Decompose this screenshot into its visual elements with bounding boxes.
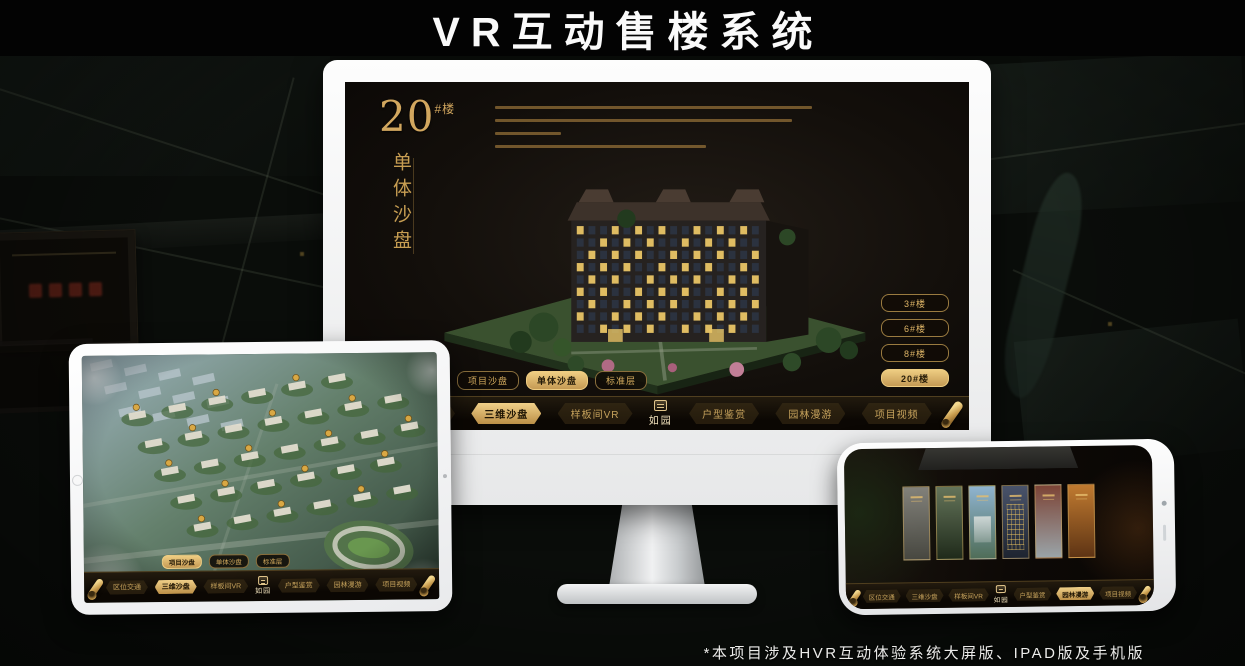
phone-speaker-icon bbox=[1163, 525, 1166, 541]
tablet-camera-icon bbox=[443, 474, 447, 478]
background-photo-patch bbox=[981, 51, 1245, 214]
ruyuan-logo-text: 如园 bbox=[649, 412, 673, 427]
building-button-8#楼[interactable]: 8#楼 bbox=[881, 344, 949, 362]
scroll-handle-icon bbox=[848, 588, 862, 605]
tablet-navbar: 区位交通三维沙盘样板间VR如园户型鉴赏园林漫游项目视频 bbox=[84, 568, 439, 603]
map-gold-speck bbox=[300, 252, 304, 256]
title-strip: VR互动售楼系统 bbox=[0, 0, 1245, 56]
nav-item-项目视频[interactable]: 项目视频 bbox=[1099, 586, 1137, 600]
building-model-render bbox=[419, 136, 889, 398]
tablet-device: 项目沙盘单体沙盘标准层 区位交通三维沙盘样板间VR如园户型鉴赏园林漫游项目视频 bbox=[69, 340, 453, 615]
tab-标准层[interactable]: 标准层 bbox=[256, 554, 290, 568]
description-text-lines bbox=[495, 106, 825, 158]
building-selector-buttons: 3#楼6#楼8#楼20#楼 bbox=[881, 294, 949, 387]
page-title: VR互动售楼系统 bbox=[422, 0, 824, 58]
phone-screen: 区位交通三维沙盘样板间VR如园户型鉴赏园林漫游项目视频 bbox=[844, 445, 1154, 609]
monitor-floor-tabs: 项目沙盘单体沙盘标准层 bbox=[457, 371, 647, 390]
tab-标准层[interactable]: 标准层 bbox=[595, 371, 647, 390]
nav-item-三维沙盘[interactable]: 三维沙盘 bbox=[471, 403, 541, 424]
nav-item-项目视频[interactable]: 项目视频 bbox=[375, 577, 417, 591]
phone-device: 区位交通三维沙盘样板间VR如园户型鉴赏园林漫游项目视频 bbox=[837, 439, 1176, 616]
nav-item-三维沙盘[interactable]: 三维沙盘 bbox=[905, 589, 943, 603]
monitor-stand-foot bbox=[557, 584, 757, 604]
gallery-panel-warm-interior[interactable] bbox=[1067, 484, 1095, 558]
nav-item-区位交通[interactable]: 区位交通 bbox=[863, 589, 901, 603]
scene-gallery bbox=[902, 484, 1095, 561]
gallery-panel-sky-building[interactable] bbox=[968, 485, 996, 559]
nav-item-样板间VR[interactable]: 样板间VR bbox=[558, 403, 633, 424]
tab-单体沙盘[interactable]: 单体沙盘 bbox=[526, 371, 588, 390]
ruyuan-logo: 如园 bbox=[994, 585, 1009, 604]
scroll-handle-icon bbox=[419, 574, 437, 595]
headline-divider bbox=[413, 158, 414, 254]
tablet-home-button[interactable] bbox=[72, 474, 83, 485]
ruyuan-logo-icon bbox=[258, 576, 268, 585]
scroll-handle-icon bbox=[941, 399, 964, 427]
tab-项目沙盘[interactable]: 项目沙盘 bbox=[162, 555, 202, 569]
building-number-suffix: #楼 bbox=[434, 102, 455, 116]
building-headline: 20#楼 bbox=[379, 96, 455, 138]
plaque-characters bbox=[1, 281, 129, 298]
nav-item-园林漫游[interactable]: 园林漫游 bbox=[775, 403, 845, 424]
page: VR互动售楼系统 20#楼 单体沙盘 bbox=[0, 0, 1245, 666]
footnote: *本项目涉及HVR互动体验系统大屏版、IPAD版及手机版 bbox=[704, 642, 1145, 663]
ruyuan-logo-icon bbox=[996, 585, 1006, 593]
phone-camera-icon bbox=[1162, 501, 1167, 506]
nav-item-项目视频[interactable]: 项目视频 bbox=[862, 403, 932, 424]
building-subtitle-vertical: 单体沙盘 bbox=[388, 152, 415, 256]
ruyuan-logo-text: 如园 bbox=[994, 594, 1009, 604]
nav-item-户型鉴赏[interactable]: 户型鉴赏 bbox=[1013, 587, 1051, 601]
tab-项目沙盘[interactable]: 项目沙盘 bbox=[457, 371, 519, 390]
nav-item-样板间VR[interactable]: 样板间VR bbox=[948, 588, 989, 602]
nav-item-区位交通[interactable]: 区位交通 bbox=[106, 580, 148, 594]
tab-单体沙盘[interactable]: 单体沙盘 bbox=[209, 554, 249, 568]
nav-item-户型鉴赏[interactable]: 户型鉴赏 bbox=[278, 578, 320, 592]
gallery-panel-dusk-facade[interactable] bbox=[1001, 485, 1029, 559]
building-button-6#楼[interactable]: 6#楼 bbox=[881, 319, 949, 337]
ruyuan-logo-icon bbox=[654, 400, 667, 411]
tablet-floor-tabs: 项目沙盘单体沙盘标准层 bbox=[162, 554, 290, 569]
building-button-20#楼[interactable]: 20#楼 bbox=[881, 369, 949, 387]
phone-navbar: 区位交通三维沙盘样板间VR如园户型鉴赏园林漫游项目视频 bbox=[846, 579, 1154, 609]
courtyard-gate-lintel bbox=[918, 446, 1078, 470]
background-photo-patch bbox=[0, 56, 330, 176]
nav-item-户型鉴赏[interactable]: 户型鉴赏 bbox=[689, 403, 759, 424]
ruyuan-logo-text: 如园 bbox=[255, 586, 271, 596]
gallery-panel-courtyard-green[interactable] bbox=[935, 486, 963, 560]
nav-item-三维沙盘[interactable]: 三维沙盘 bbox=[155, 580, 197, 594]
nav-item-园林漫游[interactable]: 园林漫游 bbox=[326, 578, 368, 592]
nav-item-样板间VR[interactable]: 样板间VR bbox=[203, 579, 248, 593]
nav-item-园林漫游[interactable]: 园林漫游 bbox=[1056, 587, 1094, 601]
gallery-panel-autumn-red[interactable] bbox=[1034, 484, 1062, 558]
ruyuan-logo: 如园 bbox=[255, 576, 271, 596]
ruyuan-logo: 如园 bbox=[649, 400, 673, 427]
award-plaque bbox=[0, 230, 138, 352]
building-number: 20 bbox=[379, 92, 434, 141]
gallery-panel-interior-gray[interactable] bbox=[902, 486, 930, 560]
map-gold-speck bbox=[1108, 322, 1112, 326]
building-button-3#楼[interactable]: 3#楼 bbox=[881, 294, 949, 312]
scroll-handle-icon bbox=[87, 577, 105, 598]
monitor-stand-neck bbox=[609, 503, 705, 587]
scroll-handle-icon bbox=[1138, 584, 1152, 601]
tablet-screen: 项目沙盘单体沙盘标准层 区位交通三维沙盘样板间VR如园户型鉴赏园林漫游项目视频 bbox=[82, 352, 440, 603]
